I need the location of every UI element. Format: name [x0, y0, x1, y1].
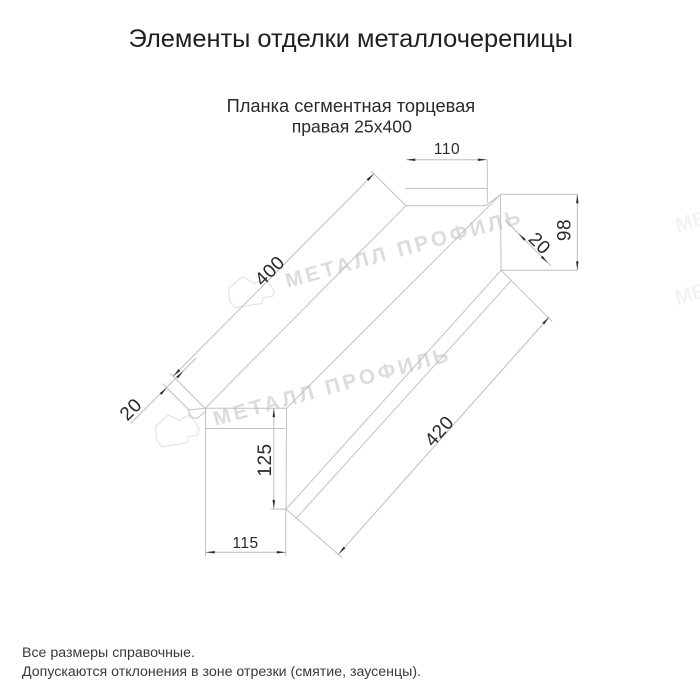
svg-text:Планка сегментная торцевая: Планка сегментная торцевая — [227, 95, 476, 116]
svg-text:125: 125 — [255, 443, 276, 476]
svg-text:Допускаются отклонения в зоне: Допускаются отклонения в зоне отрезки (с… — [22, 664, 421, 680]
svg-text:правая 25х400: правая 25х400 — [292, 116, 412, 136]
svg-text:98: 98 — [555, 219, 576, 241]
svg-text:Элементы отделки металлочерепи: Элементы отделки металлочерепицы — [129, 25, 573, 53]
svg-text:115: 115 — [232, 535, 258, 552]
svg-text:110: 110 — [434, 141, 460, 158]
svg-text:Все размеры справочные.: Все размеры справочные. — [22, 645, 195, 661]
